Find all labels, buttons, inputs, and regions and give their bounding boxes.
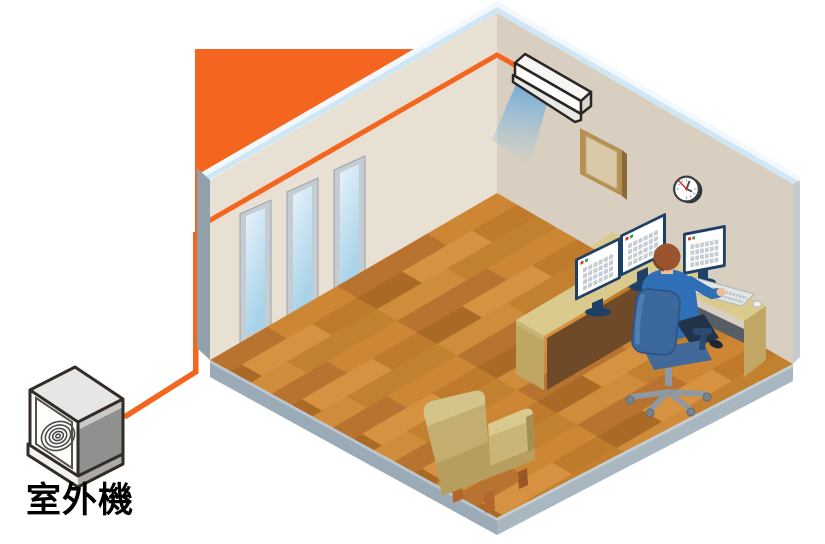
left-wall-end-face <box>197 168 210 360</box>
mouse <box>753 301 762 307</box>
outdoor-unit-label: 室外機 <box>26 482 134 521</box>
room-illustration <box>0 0 825 544</box>
worker-hand <box>717 288 726 297</box>
window-2 <box>287 178 318 321</box>
outdoor-unit <box>28 367 123 487</box>
refrigerant-pipe-outdoor <box>126 232 199 416</box>
window-1 <box>240 200 271 343</box>
illustration-canvas: 室外機 <box>0 0 825 544</box>
right-wall-end-face <box>793 180 800 364</box>
